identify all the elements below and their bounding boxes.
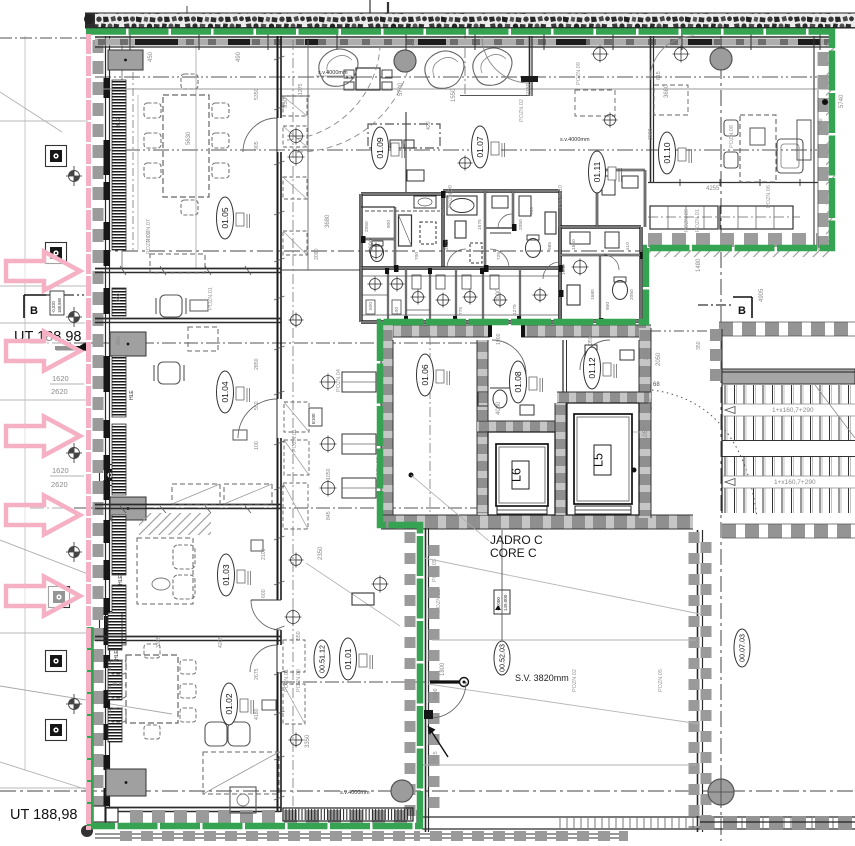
svg-text:149,000: 149,000 [503, 594, 508, 611]
svg-text:845: 845 [326, 511, 332, 520]
svg-text:01.08: 01.08 [513, 371, 523, 393]
svg-text:0591: 0591 [588, 333, 594, 345]
svg-text:4265: 4265 [218, 636, 224, 648]
svg-text:2050: 2050 [629, 289, 635, 300]
svg-text:2090: 2090 [314, 248, 320, 260]
svg-text:775: 775 [458, 307, 464, 315]
svg-text:715: 715 [433, 751, 439, 760]
svg-text:600: 600 [368, 302, 374, 310]
svg-text:2180: 2180 [526, 83, 532, 95]
svg-text:1620: 1620 [52, 374, 69, 383]
svg-text:HLE: HLE [129, 390, 135, 400]
svg-text:5740: 5740 [398, 82, 404, 96]
svg-text:5740: 5740 [818, 118, 824, 130]
svg-text:01.03: 01.03 [221, 564, 231, 586]
svg-text:900: 900 [605, 302, 611, 310]
svg-text:S.V. 3820mm: S.V. 3820mm [515, 673, 569, 683]
svg-text:615: 615 [656, 71, 662, 80]
svg-text:550: 550 [254, 401, 260, 410]
svg-text:350: 350 [696, 341, 702, 350]
svg-text:L6: L6 [510, 468, 524, 482]
svg-text:188,980: 188,980 [57, 297, 62, 313]
svg-text:POZN.04: POZN.04 [336, 369, 342, 392]
svg-text:1550: 1550 [571, 239, 577, 250]
svg-text:2050: 2050 [656, 352, 662, 366]
svg-text:s.v.4000mm: s.v.4000mm [560, 137, 590, 143]
svg-text:1680: 1680 [590, 289, 596, 300]
svg-text:-0,020: -0,020 [51, 300, 56, 313]
svg-text:POZN.09: POZN.09 [146, 231, 152, 254]
svg-text:4905: 4905 [759, 288, 765, 302]
svg-text:3350: 3350 [305, 734, 311, 748]
svg-text:HLE: HLE [114, 650, 120, 660]
svg-text:100: 100 [394, 307, 400, 315]
svg-text:01.11: 01.11 [592, 161, 602, 182]
svg-text:POZN.02: POZN.02 [572, 669, 578, 692]
svg-text:POZN.05: POZN.05 [432, 559, 438, 582]
svg-text:01.05: 01.05 [220, 207, 230, 229]
svg-text:POZN.10: POZN.10 [558, 185, 564, 208]
svg-text:2050: 2050 [518, 219, 524, 230]
svg-text:JADRO C: JADRO C [490, 533, 543, 547]
svg-text:1050: 1050 [643, 426, 649, 440]
svg-text:1900: 1900 [496, 333, 502, 345]
svg-text:550: 550 [296, 631, 302, 640]
svg-text:1800: 1800 [440, 662, 446, 676]
svg-text:00.07.03: 00.07.03 [738, 634, 747, 662]
svg-text:4080: 4080 [496, 401, 502, 415]
svg-text:s10: s10 [625, 242, 631, 250]
svg-text:900: 900 [116, 293, 122, 302]
svg-text:725: 725 [496, 252, 502, 260]
svg-text:3325: 3325 [156, 636, 162, 648]
svg-text:4180: 4180 [254, 708, 260, 720]
svg-text:POZN.06: POZN.06 [766, 185, 772, 208]
svg-text:POZN.09: POZN.09 [296, 669, 302, 692]
svg-text:POZN.09: POZN.09 [576, 62, 582, 85]
svg-text:01.10: 01.10 [662, 142, 672, 164]
svg-text:68: 68 [653, 382, 660, 388]
svg-text:01.02: 01.02 [224, 693, 234, 715]
svg-text:450: 450 [148, 51, 154, 62]
svg-text:5740: 5740 [839, 94, 845, 108]
svg-text:1050: 1050 [326, 468, 332, 480]
svg-text:01.01: 01.01 [343, 648, 353, 670]
svg-text:s.v.4000mm: s.v.4000mm [318, 70, 348, 76]
svg-text:POZN.05: POZN.05 [658, 669, 664, 692]
svg-text:2620: 2620 [51, 480, 68, 489]
svg-text:1575: 1575 [477, 219, 483, 230]
svg-text:2090: 2090 [369, 238, 375, 252]
svg-text:600: 600 [261, 589, 267, 598]
svg-text:s.v.4000mm: s.v.4000mm [340, 790, 370, 796]
svg-text:1620: 1620 [52, 466, 69, 475]
svg-text:B: B [30, 305, 38, 317]
svg-text:900: 900 [386, 220, 392, 228]
svg-text:1600: 1600 [433, 688, 439, 700]
svg-text:700: 700 [529, 207, 535, 215]
svg-text:1050: 1050 [561, 264, 567, 275]
svg-text:5350: 5350 [254, 88, 260, 100]
svg-text:3680: 3680 [664, 84, 670, 98]
svg-text:4255: 4255 [706, 186, 720, 192]
svg-text:CORE C: CORE C [490, 546, 537, 560]
svg-text:POZN.01: POZN.01 [695, 209, 701, 232]
svg-text:POZN.09: POZN.09 [684, 209, 690, 232]
svg-text:POZN.01: POZN.01 [208, 287, 214, 310]
svg-text:2050: 2050 [644, 348, 650, 360]
svg-text:HLE: HLE [116, 118, 122, 128]
svg-text:3680: 3680 [325, 214, 331, 228]
svg-text:HLE: HLE [118, 575, 124, 585]
svg-text:450: 450 [116, 336, 122, 345]
svg-text:01.07: 01.07 [475, 136, 485, 158]
svg-text:1275: 1275 [298, 83, 304, 95]
svg-text:01.12: 01.12 [587, 357, 597, 379]
svg-text:2100: 2100 [261, 548, 267, 560]
svg-text:L5: L5 [592, 453, 606, 467]
svg-text:00.51.12: 00.51.12 [318, 645, 327, 673]
svg-text:1550: 1550 [451, 88, 457, 102]
svg-text:5630: 5630 [186, 131, 192, 145]
svg-text:POZN.09: POZN.09 [448, 185, 454, 208]
svg-text:2090: 2090 [496, 288, 502, 302]
svg-text:01.06: 01.06 [420, 364, 430, 386]
svg-text:700: 700 [414, 252, 420, 260]
svg-text:01.04: 01.04 [220, 381, 230, 403]
svg-text:2090: 2090 [440, 204, 446, 215]
svg-text:2050: 2050 [648, 398, 654, 410]
svg-text:490: 490 [236, 51, 242, 62]
svg-text:2350: 2350 [318, 546, 324, 560]
svg-text:POZN.08: POZN.08 [729, 125, 735, 148]
svg-text:POZN.12: POZN.12 [436, 589, 442, 612]
svg-text:2420: 2420 [444, 239, 450, 250]
svg-text:2050: 2050 [364, 221, 370, 232]
svg-text:2850: 2850 [254, 358, 260, 370]
svg-text:POZN.01: POZN.01 [292, 429, 298, 452]
svg-text:3980: 3980 [648, 128, 654, 140]
svg-text:2620: 2620 [51, 387, 68, 396]
svg-text:1+x160,7+290: 1+x160,7+290 [774, 479, 816, 486]
svg-text:POZN.02: POZN.02 [519, 99, 525, 122]
svg-text:1+x160,7+290: 1+x160,7+290 [772, 407, 814, 414]
svg-text:1480: 1480 [696, 258, 702, 272]
svg-text:2675: 2675 [254, 668, 260, 680]
svg-text:905: 905 [254, 141, 260, 150]
svg-text:E100: E100 [311, 413, 316, 424]
svg-text:100: 100 [254, 441, 260, 450]
svg-text:POZN.01: POZN.01 [284, 669, 290, 692]
svg-text:01.09: 01.09 [375, 137, 385, 159]
svg-text:UT 188,98: UT 188,98 [10, 807, 77, 823]
svg-text:420: 420 [426, 121, 432, 130]
svg-text:1275: 1275 [512, 304, 518, 315]
svg-text:00.52.03: 00.52.03 [498, 644, 507, 672]
svg-text:B: B [738, 305, 746, 317]
svg-text:985: 985 [547, 242, 553, 250]
